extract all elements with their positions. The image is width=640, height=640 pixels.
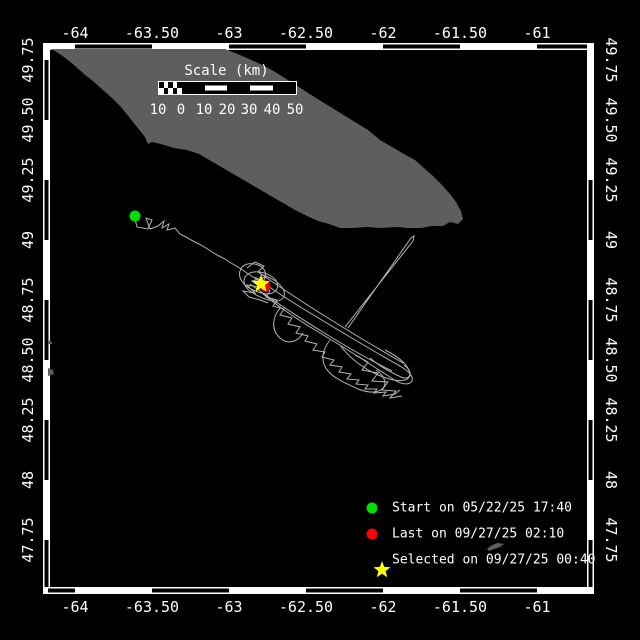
map-canvas[interactable] (0, 0, 640, 640)
lon-label-top: -61.50 (433, 24, 487, 42)
lon-label-top: -63 (215, 24, 242, 42)
lon-label-top: -62.50 (279, 24, 333, 42)
legend-last-label: Last on 09/27/25 02:10 (392, 527, 564, 542)
track-segment (323, 340, 385, 392)
lat-label-right: 48.25 (602, 397, 620, 442)
start-dot-icon (367, 503, 378, 514)
scale-tick-label: 50 (278, 102, 312, 118)
zebra-segment (383, 45, 460, 49)
zebra-segment (589, 300, 593, 360)
zebra-segment (152, 589, 229, 593)
tracking-map-window: -64-64-63.50-63.50-63-63-62.50-62.50-62-… (0, 0, 640, 640)
track-segment (135, 218, 262, 283)
track-segment (345, 236, 414, 328)
scale-seg (227, 82, 250, 94)
lon-label-top: -62 (369, 24, 396, 42)
zebra-segment (48, 589, 75, 593)
zebra-segment (45, 420, 49, 480)
scale-seg-checker (159, 82, 182, 94)
zebra-segment (45, 60, 49, 120)
lat-label-left: 49.50 (19, 97, 37, 142)
scale-seg (205, 82, 228, 94)
scale-bar (158, 81, 297, 95)
scale-bar-title: Scale (km) (158, 63, 295, 79)
scale-seg (182, 82, 205, 94)
start-position-marker[interactable] (130, 211, 141, 222)
lon-label-bottom: -62.50 (279, 598, 333, 616)
lat-label-right: 48 (602, 471, 620, 489)
lat-label-left: 48.75 (19, 277, 37, 322)
lat-label-right: 49 (602, 231, 620, 249)
track-segment (255, 277, 412, 384)
lon-label-top: -61 (523, 24, 550, 42)
lat-label-left: 49.25 (19, 157, 37, 202)
zebra-segment (45, 540, 49, 587)
zebra-segment (589, 180, 593, 240)
zebra-segment (45, 300, 49, 360)
zebra-segment (306, 589, 383, 593)
scale-seg (250, 82, 273, 94)
lon-label-bottom: -61.50 (433, 598, 487, 616)
zebra-segment (589, 420, 593, 480)
zebra-segment (45, 180, 49, 240)
lat-label-right: 49.25 (602, 157, 620, 202)
lon-label-bottom: -62 (369, 598, 396, 616)
zebra-segment (75, 45, 152, 49)
lat-label-right: 48.50 (602, 337, 620, 382)
islet (487, 543, 504, 551)
lat-label-right: 48.75 (602, 277, 620, 322)
lat-label-left: 47.75 (19, 517, 37, 562)
last-dot-icon (367, 529, 378, 540)
lon-label-top: -64 (61, 24, 88, 42)
lat-label-right: 47.75 (602, 517, 620, 562)
lat-label-right: 49.75 (602, 37, 620, 82)
islet (48, 368, 54, 376)
lat-label-left: 49.75 (19, 37, 37, 82)
track-segment (258, 272, 403, 363)
lon-label-bottom: -64 (61, 598, 88, 616)
scale-seg (273, 82, 296, 94)
legend-selected-label: Selected on 09/27/25 00:40 (392, 553, 596, 568)
lon-label-bottom: -63 (215, 598, 242, 616)
legend-start-label: Start on 05/22/25 17:40 (392, 501, 572, 516)
zebra-segment (460, 589, 537, 593)
lat-label-left: 49 (19, 231, 37, 249)
zebra-segment (229, 45, 306, 49)
small-islands (48, 340, 504, 551)
lon-label-bottom: -61 (523, 598, 550, 616)
lon-label-bottom: -63.50 (125, 598, 179, 616)
lat-label-left: 48.50 (19, 337, 37, 382)
track-path (135, 218, 414, 398)
zebra-segment (537, 45, 587, 49)
lat-label-right: 49.50 (602, 97, 620, 142)
lat-label-left: 48 (19, 471, 37, 489)
lat-label-left: 48.25 (19, 397, 37, 442)
lon-label-top: -63.50 (125, 24, 179, 42)
